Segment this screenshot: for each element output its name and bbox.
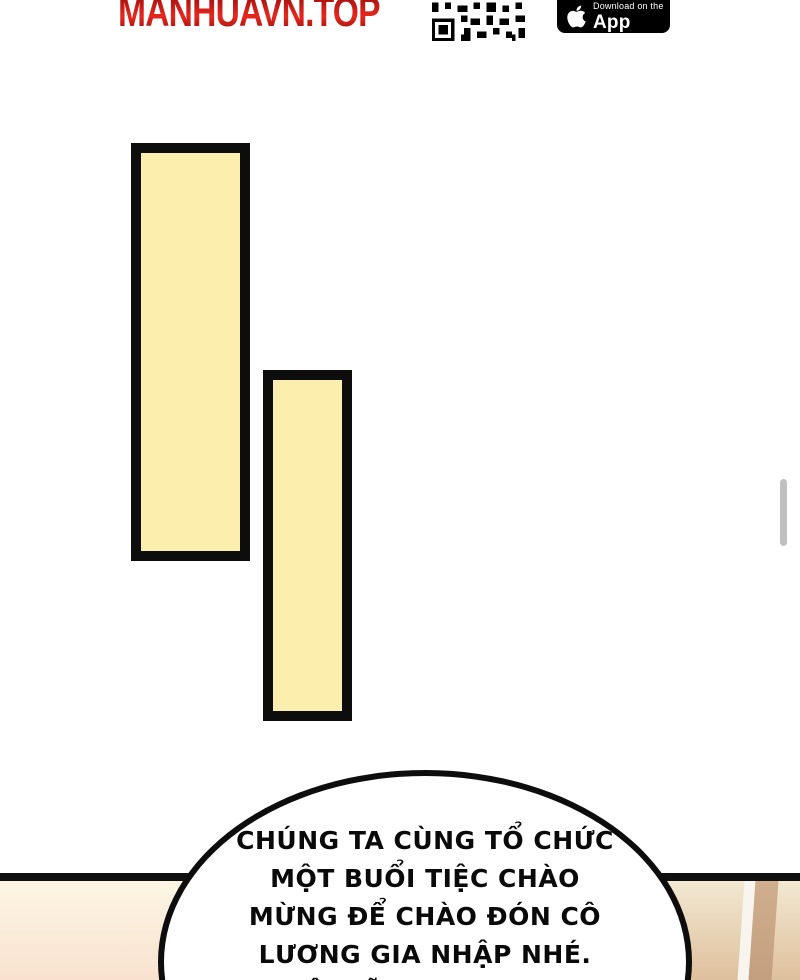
comic-panel-bar-short [263, 370, 352, 721]
comic-panel-bar-tall [131, 143, 250, 561]
speech-line: MỪNG ĐỂ CHÀO ĐÓN CÔ [164, 898, 686, 936]
speech-line: CHÚNG TA CÙNG TỔ CHỨC [164, 822, 686, 860]
app-store-badge-text: Download on the App Store [593, 2, 670, 51]
scrollbar-thumb[interactable] [780, 479, 787, 546]
qr-code-icon[interactable] [432, 0, 525, 41]
apple-logo-icon [566, 4, 587, 29]
speech-bubble: CHÚNG TA CÙNG TỔ CHỨC MỘT BUỔI TIỆC CHÀO… [158, 770, 692, 980]
speech-line: TÔI SẼ ĐI DỌN DẸP [164, 974, 686, 980]
speech-line: MỘT BUỔI TIỆC CHÀO [164, 860, 686, 898]
badge-title: App Store [593, 13, 670, 51]
speech-bubble-text: CHÚNG TA CÙNG TỔ CHỨC MỘT BUỔI TIỆC CHÀO… [164, 822, 686, 980]
comic-reader-page: MANHUAVN.TOP Download on th [0, 0, 800, 980]
app-store-badge[interactable]: Download on the App Store [557, 0, 670, 33]
speech-line: LƯƠNG GIA NHẬP NHÉ. [164, 936, 686, 974]
badge-subtitle: Download on the [593, 2, 670, 11]
site-logo[interactable]: MANHUAVN.TOP [118, 0, 380, 34]
